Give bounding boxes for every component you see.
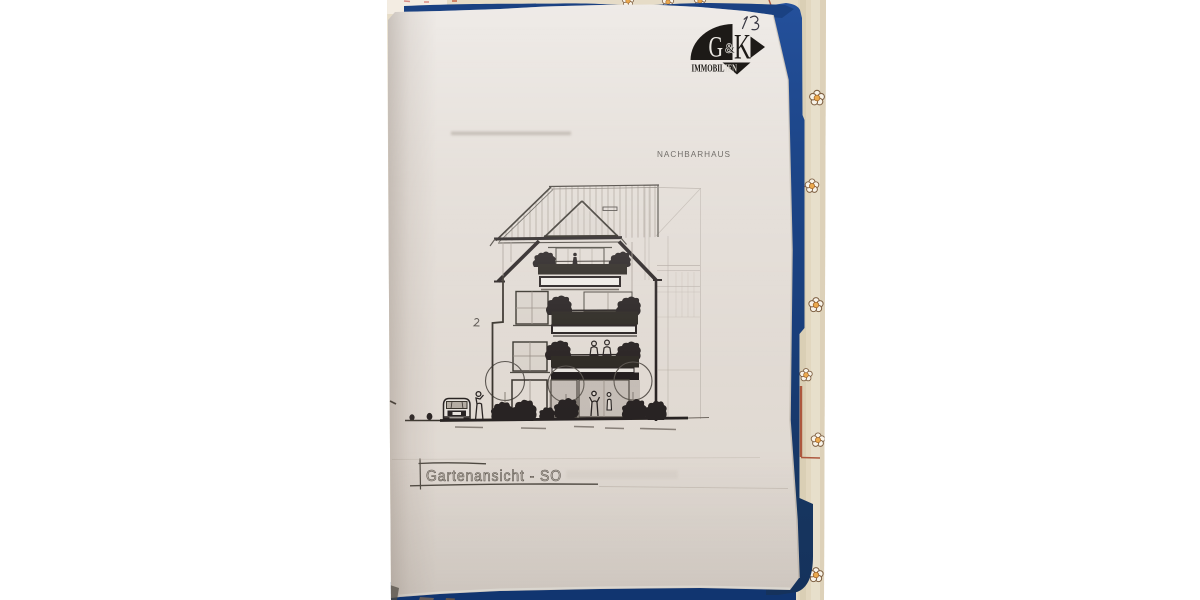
- svg-text:K: K: [734, 26, 751, 66]
- svg-text:IMMOBIL: IMMOBIL: [692, 64, 725, 75]
- svg-text:IEN: IEN: [725, 64, 737, 75]
- svg-text:G: G: [709, 32, 723, 64]
